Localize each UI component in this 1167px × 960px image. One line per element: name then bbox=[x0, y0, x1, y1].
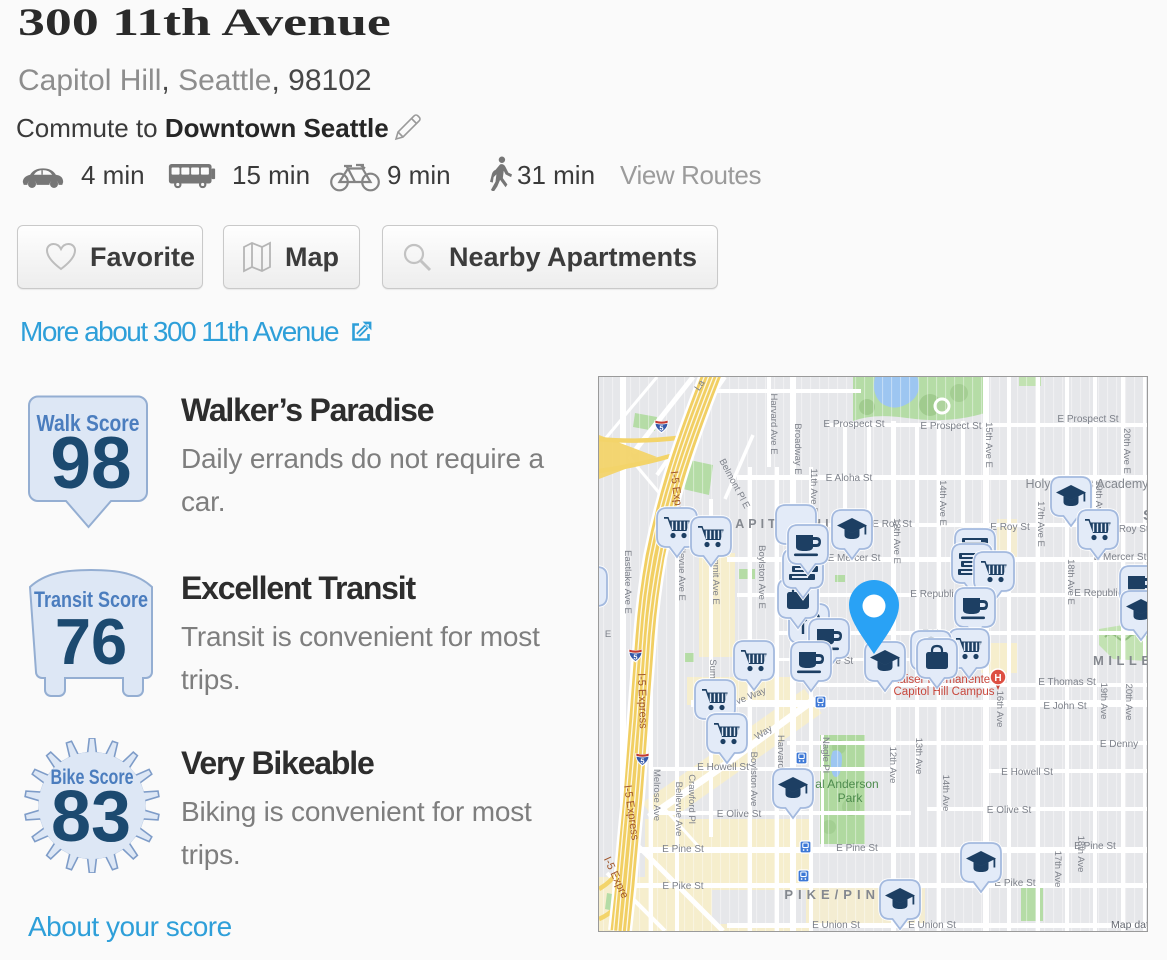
svg-text:S: S bbox=[1143, 507, 1147, 524]
svg-text:17th Ave E: 17th Ave E bbox=[1035, 501, 1046, 547]
svg-text:MILLER: MILLER bbox=[1093, 653, 1147, 668]
svg-text:E Pine St: E Pine St bbox=[662, 844, 704, 855]
svg-text:Broadway E: Broadway E bbox=[792, 423, 803, 474]
svg-text:E Union St: E Union St bbox=[908, 920, 956, 931]
svg-text:E Pike St: E Pike St bbox=[662, 881, 703, 892]
svg-text:Boylston Ave: Boylston Ave bbox=[748, 752, 759, 807]
svg-text:E John St: E John St bbox=[1043, 701, 1087, 712]
svg-text:E Pine St: E Pine St bbox=[836, 843, 878, 854]
svg-text:18th Ave: 18th Ave bbox=[1075, 836, 1086, 873]
svg-text:19th Ave: 19th Ave bbox=[1098, 683, 1109, 720]
svg-text:17th Ave: 17th Ave bbox=[1052, 851, 1063, 888]
svg-text:Bellevue Ave: Bellevue Ave bbox=[673, 782, 684, 837]
svg-text:E Howell St: E Howell St bbox=[697, 762, 749, 773]
svg-text:15th Ave E: 15th Ave E bbox=[983, 422, 994, 468]
svg-text:E Roy St: E Roy St bbox=[990, 522, 1030, 533]
svg-text:E Union St: E Union St bbox=[812, 920, 860, 931]
svg-text:20th Ave: 20th Ave bbox=[1123, 684, 1134, 721]
svg-text:E Howell St: E Howell St bbox=[1001, 767, 1053, 778]
svg-text:E Olive St: E Olive St bbox=[717, 809, 762, 820]
svg-text:E Denny: E Denny bbox=[1100, 739, 1138, 750]
svg-text:Capitol Hill Campus: Capitol Hill Campus bbox=[894, 686, 995, 698]
svg-text:Harvard Ave E: Harvard Ave E bbox=[768, 393, 779, 454]
svg-text:98: 98 bbox=[50, 423, 131, 504]
svg-text:E Prospect St: E Prospect St bbox=[1057, 414, 1118, 425]
svg-text:Boylston Ave E: Boylston Ave E bbox=[756, 545, 767, 609]
svg-text:E Prospect St: E Prospect St bbox=[920, 421, 981, 432]
svg-text:I-5 Express: I-5 Express bbox=[635, 673, 649, 730]
svg-text:E Olive St: E Olive St bbox=[987, 805, 1032, 816]
svg-text:al Anderson: al Anderson bbox=[815, 777, 878, 791]
svg-text:E: E bbox=[605, 629, 611, 640]
svg-text:13th Ave: 13th Ave bbox=[913, 738, 924, 775]
svg-text:18th Ave E: 18th Ave E bbox=[1065, 559, 1076, 605]
svg-text:14th Ave E: 14th Ave E bbox=[937, 480, 948, 526]
svg-text:Crawford Pl: Crawford Pl bbox=[686, 774, 697, 824]
svg-text:Park: Park bbox=[838, 791, 864, 805]
svg-text:20th Ave E: 20th Ave E bbox=[1121, 428, 1132, 474]
svg-text:E Thomas St: E Thomas St bbox=[1038, 677, 1096, 688]
svg-text:Nagle Pl: Nagle Pl bbox=[820, 737, 831, 773]
svg-text:12th Ave: 12th Ave bbox=[887, 747, 898, 784]
svg-text:Map dat: Map dat bbox=[1111, 919, 1147, 931]
svg-text:E Aloha St: E Aloha St bbox=[826, 473, 873, 484]
svg-text:PIKE/PINE: PIKE/PINE bbox=[784, 887, 893, 902]
svg-text:Eastlake Ave E: Eastlake Ave E bbox=[622, 550, 633, 614]
svg-text:Melrose Ave: Melrose Ave bbox=[651, 769, 662, 821]
svg-text:H: H bbox=[994, 673, 1001, 684]
svg-text:76: 76 bbox=[55, 605, 127, 678]
svg-text:E Prospect St: E Prospect St bbox=[823, 419, 884, 430]
svg-text:83: 83 bbox=[51, 777, 131, 857]
svg-text:12th Ave E: 12th Ave E bbox=[891, 518, 902, 564]
svg-text:14th Ave: 14th Ave bbox=[940, 775, 951, 812]
svg-text:16th Ave: 16th Ave bbox=[994, 691, 1005, 728]
